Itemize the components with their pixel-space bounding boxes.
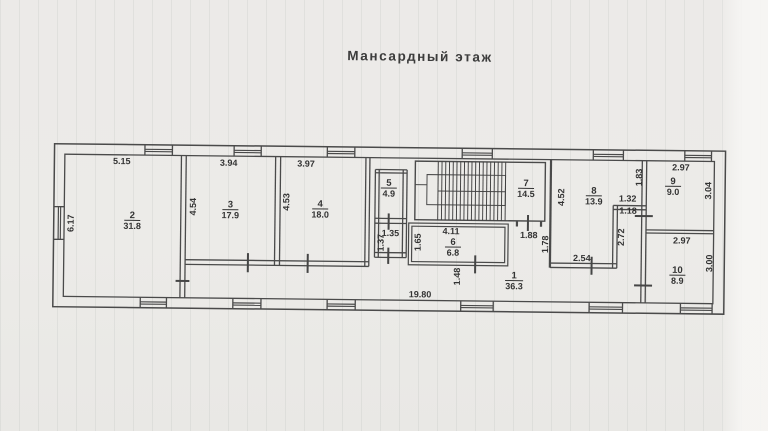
svg-text:4.52: 4.52	[556, 188, 566, 206]
svg-text:1.78: 1.78	[540, 236, 550, 254]
svg-text:2.72: 2.72	[616, 228, 626, 246]
svg-text:2.97: 2.97	[672, 162, 690, 172]
svg-text:5: 5	[386, 178, 392, 189]
svg-text:6: 6	[450, 237, 455, 248]
svg-text:1.65: 1.65	[413, 233, 423, 251]
svg-text:3.00: 3.00	[704, 254, 714, 272]
svg-text:1.32: 1.32	[619, 193, 637, 203]
svg-text:14.5: 14.5	[517, 189, 535, 199]
svg-text:1.18: 1.18	[619, 206, 637, 216]
svg-text:1: 1	[511, 270, 517, 281]
svg-text:2.97: 2.97	[673, 235, 691, 245]
svg-text:8: 8	[591, 186, 596, 197]
svg-text:1.48: 1.48	[452, 268, 462, 286]
svg-text:19.80: 19.80	[409, 289, 432, 299]
svg-text:9.0: 9.0	[667, 187, 680, 197]
svg-text:18.0: 18.0	[311, 209, 329, 219]
svg-text:4.11: 4.11	[442, 226, 459, 236]
svg-text:7: 7	[523, 178, 528, 189]
svg-text:2.54: 2.54	[573, 253, 591, 263]
svg-text:Мансардный этаж: Мансардный этаж	[347, 48, 493, 65]
svg-text:1.37: 1.37	[376, 234, 386, 252]
svg-text:4.9: 4.9	[382, 189, 395, 199]
svg-text:17.9: 17.9	[221, 210, 239, 220]
svg-text:4.54: 4.54	[188, 198, 198, 216]
svg-text:2: 2	[130, 210, 135, 221]
svg-text:9: 9	[670, 176, 675, 187]
svg-text:4: 4	[318, 199, 324, 210]
svg-text:8.9: 8.9	[671, 276, 684, 286]
svg-text:1.88: 1.88	[520, 230, 538, 240]
svg-text:3.94: 3.94	[220, 158, 238, 168]
svg-text:3: 3	[228, 199, 233, 210]
svg-text:1.83: 1.83	[634, 169, 644, 187]
svg-text:6.8: 6.8	[447, 248, 460, 258]
svg-text:10: 10	[672, 265, 683, 276]
svg-text:5.15: 5.15	[113, 156, 131, 166]
svg-text:31.8: 31.8	[123, 221, 141, 231]
svg-text:6.17: 6.17	[66, 214, 76, 232]
svg-text:3.04: 3.04	[703, 182, 713, 200]
svg-text:13.9: 13.9	[585, 196, 603, 206]
svg-text:3.97: 3.97	[297, 159, 315, 169]
svg-text:4.53: 4.53	[281, 193, 291, 211]
svg-text:36.3: 36.3	[505, 281, 523, 291]
